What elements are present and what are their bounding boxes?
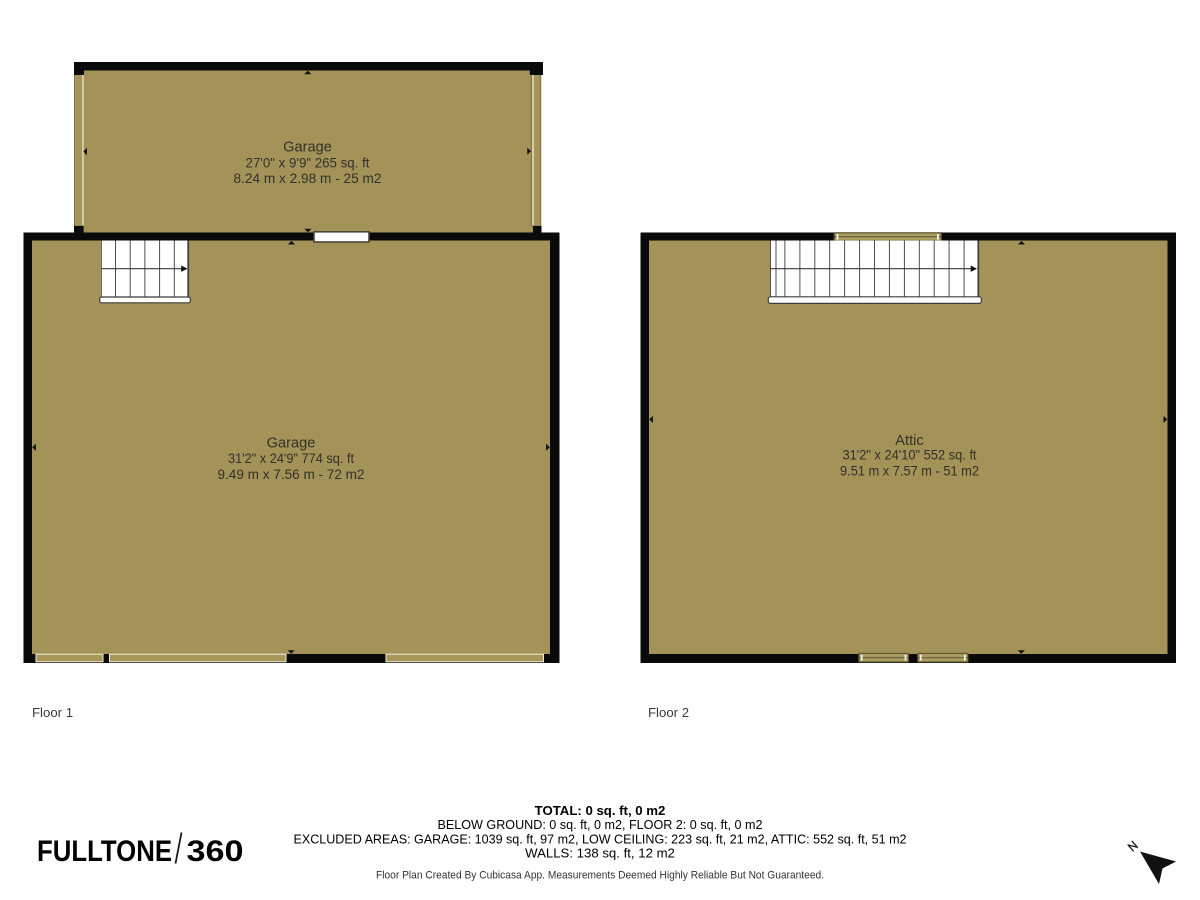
- svg-text:Floor 2: Floor 2: [648, 705, 689, 720]
- svg-text:BELOW GROUND: 0 sq. ft, 0 m2,: BELOW GROUND: 0 sq. ft, 0 m2, FLOOR 2: 0…: [438, 817, 763, 832]
- svg-text:Floor Plan Created By Cubicasa: Floor Plan Created By Cubicasa App. Meas…: [376, 870, 824, 882]
- svg-text:27'0" x 9'9" 265 sq. ft: 27'0" x 9'9" 265 sq. ft: [246, 155, 370, 170]
- svg-text:EXCLUDED AREAS: GARAGE: 1039 s: EXCLUDED AREAS: GARAGE: 1039 sq. ft, 97 …: [294, 831, 907, 846]
- svg-text:31'2" x 24'10" 552 sq. ft: 31'2" x 24'10" 552 sq. ft: [843, 448, 977, 463]
- svg-text:FULLTONE: FULLTONE: [37, 835, 172, 868]
- svg-text:31'2" x 24'9" 774 sq. ft: 31'2" x 24'9" 774 sq. ft: [228, 451, 354, 466]
- svg-text:WALLS: 138 sq. ft, 12 m2: WALLS: 138 sq. ft, 12 m2: [525, 846, 675, 861]
- svg-text:8.24 m x 2.98 m - 25 m2: 8.24 m x 2.98 m - 25 m2: [234, 171, 382, 186]
- svg-text:Garage: Garage: [267, 435, 316, 451]
- svg-text:Attic: Attic: [895, 433, 923, 449]
- svg-text:Floor 1: Floor 1: [32, 705, 73, 720]
- svg-text:TOTAL: 0 sq. ft, 0 m2: TOTAL: 0 sq. ft, 0 m2: [535, 803, 666, 818]
- svg-text:9.49 m x 7.56 m - 72 m2: 9.49 m x 7.56 m - 72 m2: [218, 467, 365, 482]
- svg-text:9.51 m x 7.57 m - 51 m2: 9.51 m x 7.57 m - 51 m2: [840, 463, 979, 478]
- svg-text:Garage: Garage: [283, 140, 332, 156]
- svg-text:360: 360: [187, 835, 244, 868]
